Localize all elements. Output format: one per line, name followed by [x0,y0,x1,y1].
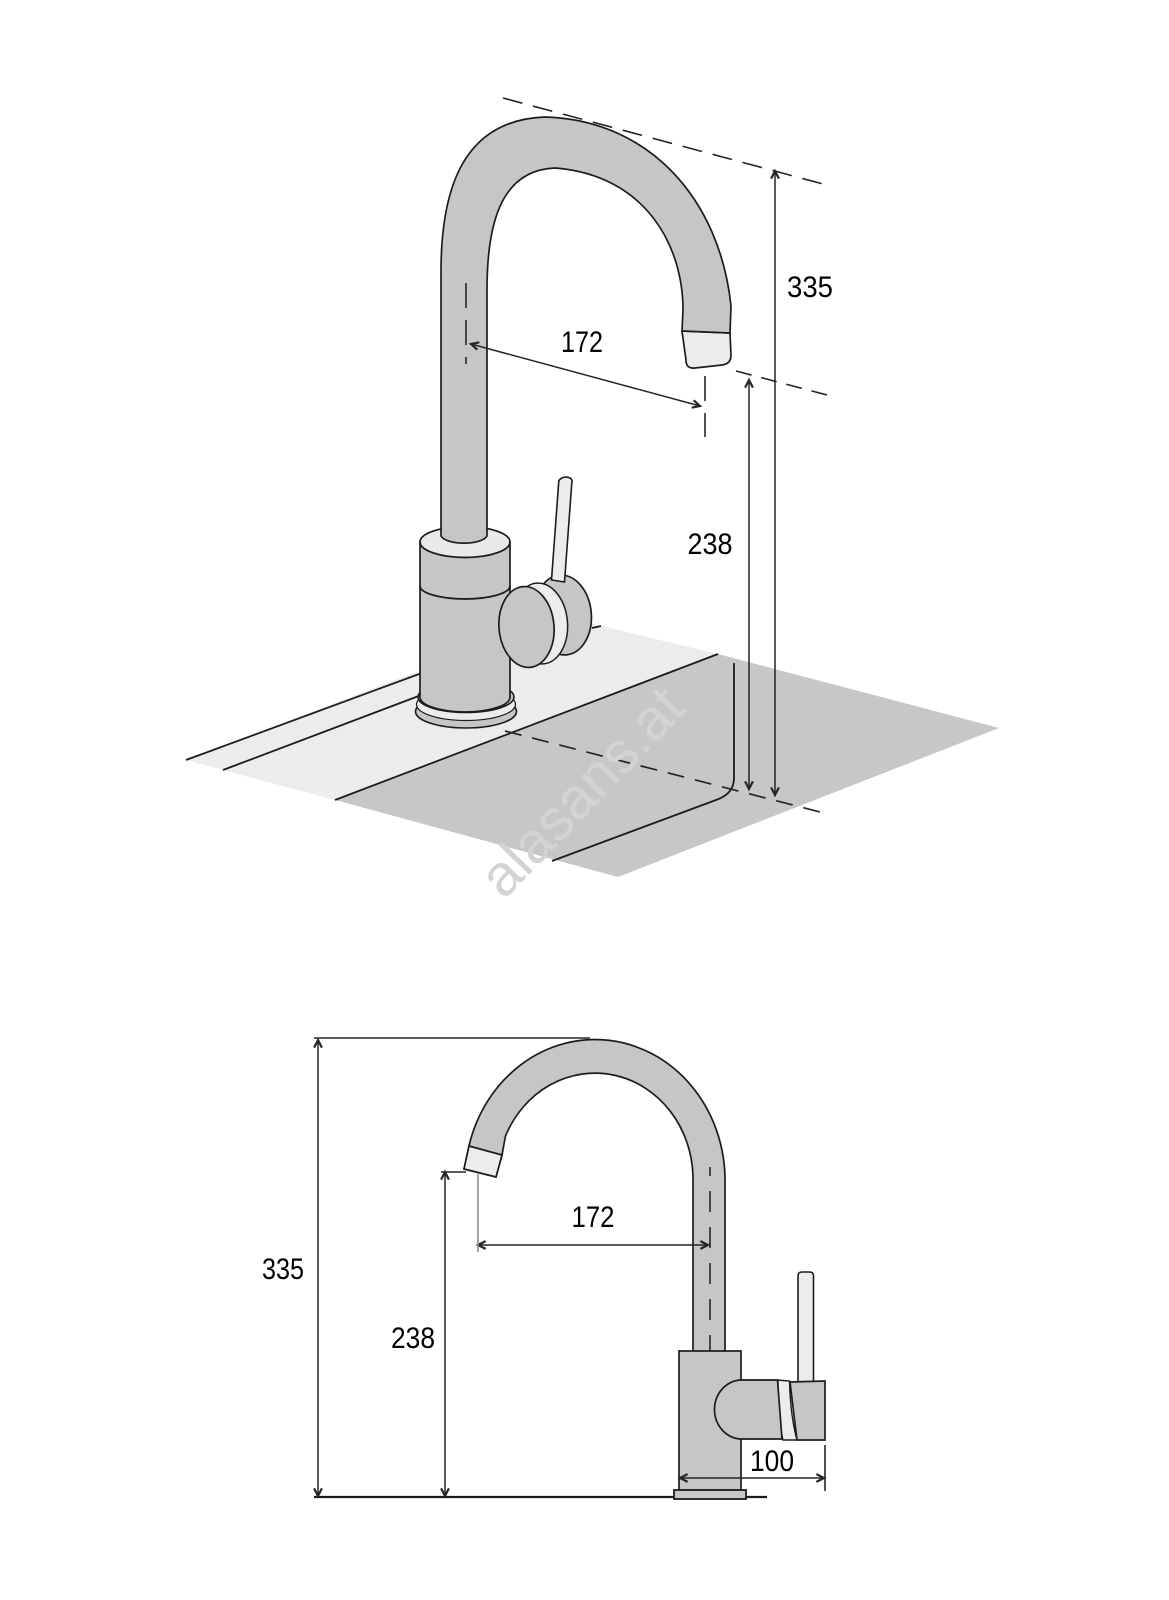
svg-text:238: 238 [391,1322,435,1355]
svg-text:172: 172 [572,1201,615,1234]
svg-text:335: 335 [262,1253,304,1286]
svg-text:238: 238 [688,528,733,561]
svg-text:172: 172 [561,326,603,359]
svg-text:335: 335 [787,271,833,304]
svg-text:100: 100 [750,1445,794,1478]
